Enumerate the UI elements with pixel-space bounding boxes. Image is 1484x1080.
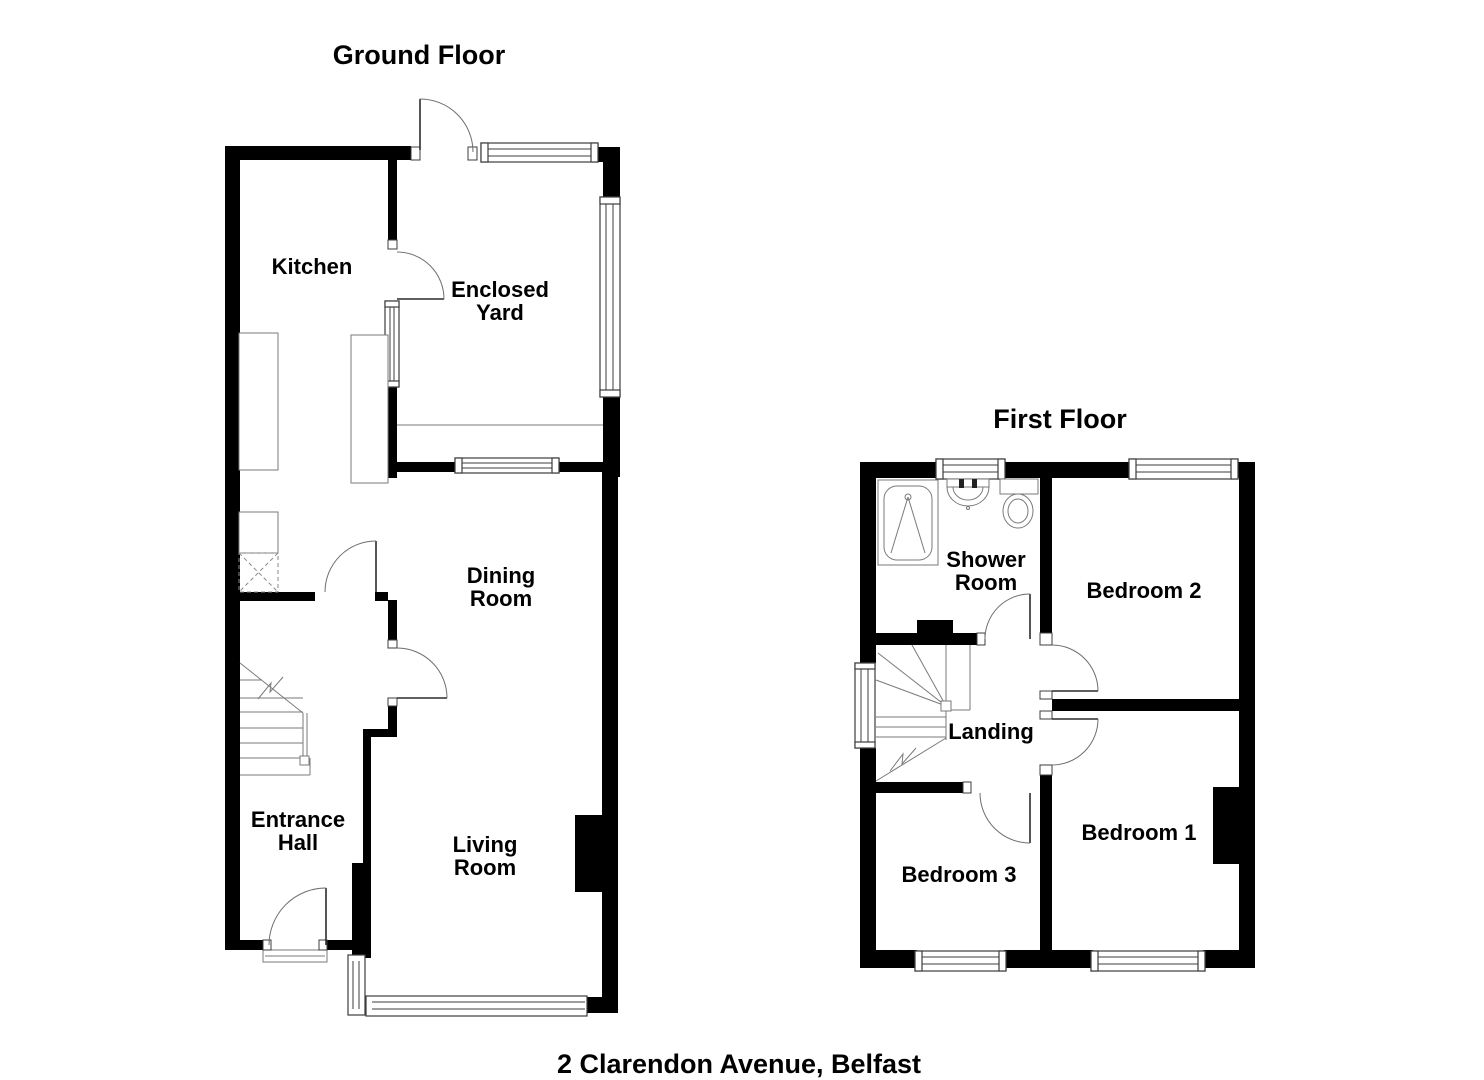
shower-room-door <box>977 594 1030 645</box>
first-floor-staircase <box>876 645 970 781</box>
bedroom2-window <box>1129 459 1238 479</box>
bedroom3-window <box>915 951 1006 971</box>
floorplan-canvas: Ground Floor Kitchen Enclosed Yard Dinin… <box>0 0 1484 1080</box>
kitchen-hall-door <box>325 541 376 592</box>
floorplan-page: Ground Floor Kitchen Enclosed Yard Dinin… <box>0 0 1484 1080</box>
dining-room-window <box>455 458 559 473</box>
room-label-living-room-line1: Living <box>453 832 518 857</box>
sink-icon <box>947 479 989 510</box>
room-label-landing: Landing <box>948 719 1034 744</box>
yard-back-door <box>411 99 477 160</box>
room-label-bedroom3: Bedroom 3 <box>902 862 1017 887</box>
ground-floor-staircase <box>240 663 310 775</box>
shower-icon <box>878 480 938 565</box>
kitchen-hatched-unit <box>239 553 278 592</box>
room-label-shower-room-line1: Shower <box>946 547 1026 572</box>
landing-window <box>855 663 875 748</box>
ground-floor-plan: Ground Floor Kitchen Enclosed Yard Dinin… <box>225 40 620 1016</box>
kitchen-yard-door <box>388 240 444 299</box>
yard-right-window <box>600 197 620 397</box>
living-room-bay-window <box>348 955 587 1016</box>
hall-dining-door <box>388 640 447 706</box>
front-door <box>263 888 327 950</box>
room-label-living-room-line2: Room <box>454 855 516 880</box>
bedroom3-door <box>963 782 1030 843</box>
ground-floor-title: Ground Floor <box>333 40 506 70</box>
front-door-threshold <box>263 950 327 962</box>
shower-room-window <box>936 459 1005 479</box>
room-label-kitchen: Kitchen <box>272 254 353 279</box>
room-label-bedroom2: Bedroom 2 <box>1087 578 1202 603</box>
room-label-shower-room-line2: Room <box>955 570 1017 595</box>
bedroom1-door <box>1040 711 1098 775</box>
room-label-entrance-hall-line2: Hall <box>278 830 318 855</box>
address-caption: 2 Clarendon Avenue, Belfast <box>557 1049 921 1079</box>
first-floor-title: First Floor <box>993 404 1127 434</box>
bedroom2-door <box>1040 633 1098 699</box>
first-floor-plan: First Floor Shower Room Bedroom 2 Landin… <box>855 404 1255 971</box>
room-label-bedroom1: Bedroom 1 <box>1082 820 1197 845</box>
room-label-enclosed-yard-line2: Yard <box>476 300 524 325</box>
room-label-enclosed-yard-line1: Enclosed <box>451 277 549 302</box>
room-label-dining-room-line2: Room <box>470 586 532 611</box>
room-label-dining-room-line1: Dining <box>467 563 535 588</box>
toilet-icon <box>1000 479 1038 528</box>
room-label-entrance-hall-line1: Entrance <box>251 807 345 832</box>
bedroom1-window <box>1091 951 1205 971</box>
kitchen-counters <box>239 333 388 592</box>
yard-top-window <box>481 143 598 162</box>
